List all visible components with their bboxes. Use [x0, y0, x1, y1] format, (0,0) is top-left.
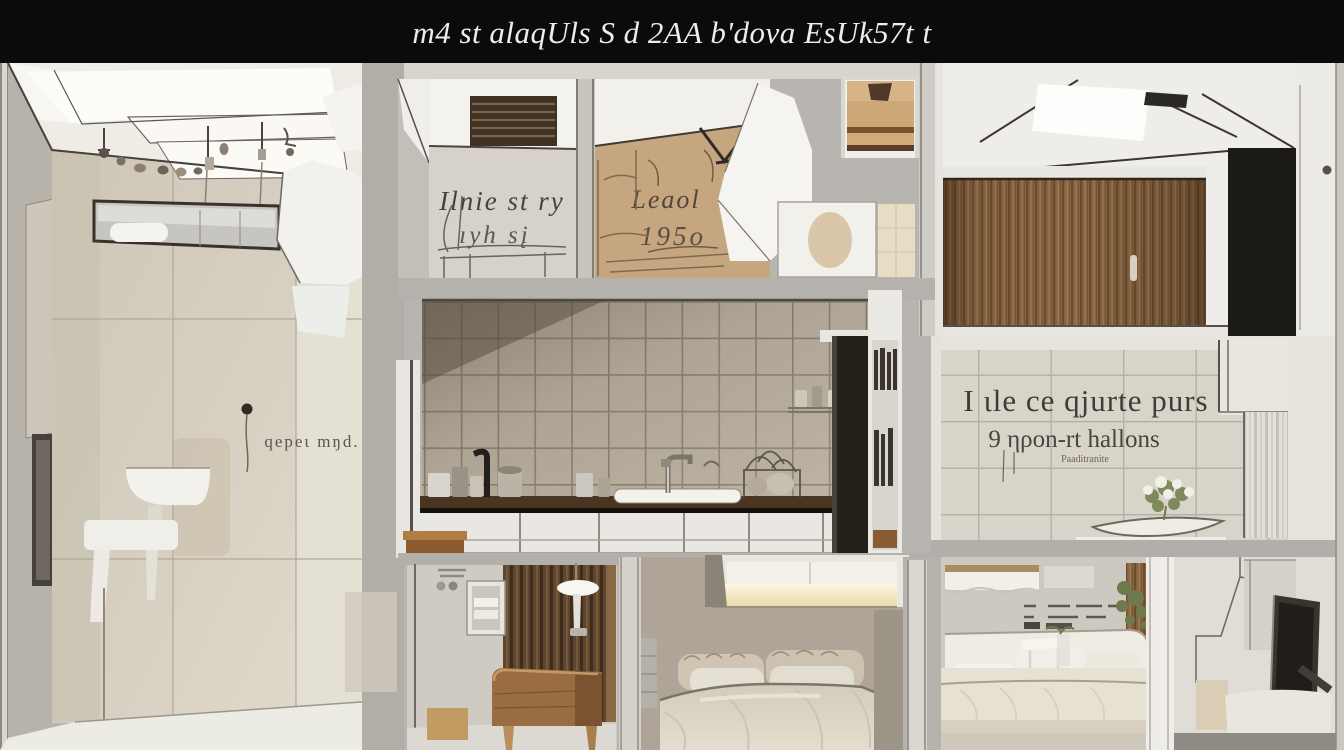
svg-text:qepeι mŋd.: qepeι mŋd.: [264, 432, 359, 451]
svg-text:Paaditranite: Paaditranite: [1061, 454, 1109, 465]
svg-text:Ilnie st ry: Ilnie st ry: [438, 186, 564, 216]
svg-text:I ιle ce qjurte purs: I ιle ce qjurte purs: [963, 383, 1208, 418]
svg-text:Leaol: Leaol: [630, 185, 700, 214]
svg-text:m4 st alaqUls S d 2AA b'dova E: m4 st alaqUls S d 2AA b'dova EsUk57t t: [412, 15, 932, 50]
svg-text:9 ηροn-rt hallons: 9 ηροn-rt hallons: [988, 426, 1159, 453]
